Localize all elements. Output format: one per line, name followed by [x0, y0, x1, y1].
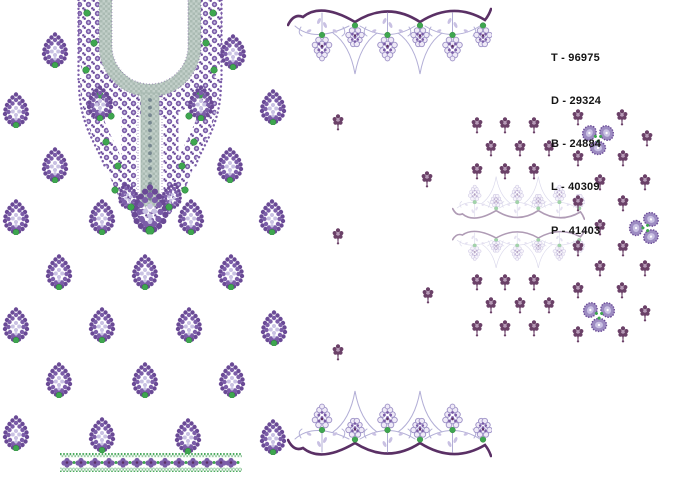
buti-motif — [423, 287, 434, 303]
buti-motif — [515, 140, 526, 156]
paisley-motif — [178, 199, 204, 235]
stitch-info-line-l: L - 40309 — [551, 180, 601, 194]
paisley-motif — [3, 199, 29, 235]
buti-motif — [422, 171, 433, 187]
buti-motif — [529, 320, 540, 336]
buti-motif — [529, 274, 540, 290]
buti-motif — [333, 114, 344, 130]
paisley-motif — [42, 32, 68, 68]
trefoil-motif — [577, 291, 622, 338]
buti-motif — [515, 297, 526, 313]
green-hemline-strip — [60, 453, 242, 472]
trefoil-motif — [623, 205, 670, 250]
buti-motif — [529, 117, 540, 133]
buti-motif — [617, 282, 628, 298]
top-scallop-border — [288, 9, 492, 74]
stitch-info-line-p: P - 41403 — [551, 224, 601, 238]
buti-motif — [618, 195, 629, 211]
buti-motif — [573, 326, 584, 342]
buti-motif — [529, 163, 540, 179]
buti-motif — [500, 117, 511, 133]
buti-motif — [500, 274, 511, 290]
buti-motif — [486, 297, 497, 313]
paisley-motif — [89, 417, 115, 453]
stitch-info-line-b: B - 24884 — [551, 137, 601, 151]
buti-motif — [640, 260, 651, 276]
paisley-motif — [132, 362, 158, 398]
buti-motif — [617, 109, 628, 125]
buti-motif — [544, 297, 555, 313]
buti-motif — [618, 326, 629, 342]
paisley-motif — [217, 147, 243, 183]
buti-motif — [472, 117, 483, 133]
paisley-motif — [42, 147, 68, 183]
paisley-motif — [218, 254, 244, 290]
buti-motif — [472, 274, 483, 290]
buti-motif — [500, 320, 511, 336]
buti-motif — [333, 344, 344, 360]
design-canvas: T - 96975 D - 29324 B - 24884 L - 40309 … — [0, 0, 695, 480]
bottom-scallop-border — [288, 391, 492, 456]
paisley-motif — [260, 89, 286, 125]
buti-motif — [472, 163, 483, 179]
stitch-info-panel: T - 96975 D - 29324 B - 24884 L - 40309 … — [551, 22, 601, 267]
buti-motif — [573, 282, 584, 298]
buti-motif — [486, 140, 497, 156]
buti-motif — [640, 174, 651, 190]
stitch-info-line-t: T - 96975 — [551, 51, 601, 65]
buti-motif — [472, 320, 483, 336]
buti-motif — [618, 150, 629, 166]
paisley-motif — [89, 307, 115, 343]
paisley-motif — [175, 418, 201, 454]
paisley-motif — [3, 415, 29, 451]
buti-motif — [642, 130, 653, 146]
paisley-motif — [46, 254, 72, 290]
paisley-motif — [132, 254, 158, 290]
paisley-motif — [89, 199, 115, 235]
paisley-motif — [219, 362, 245, 398]
stitch-info-line-d: D - 29324 — [551, 94, 601, 108]
buti-motif — [333, 228, 344, 244]
paisley-motif — [261, 310, 287, 346]
paisley-motif — [220, 34, 246, 70]
buti-motif — [640, 305, 651, 321]
paisley-motif — [176, 307, 202, 343]
paisley-motif — [260, 419, 286, 455]
paisley-motif — [3, 307, 29, 343]
paisley-motif — [46, 362, 72, 398]
buti-motif — [618, 240, 629, 256]
paisley-motif — [3, 92, 29, 128]
paisley-motif — [259, 199, 285, 235]
buti-motif — [500, 163, 511, 179]
